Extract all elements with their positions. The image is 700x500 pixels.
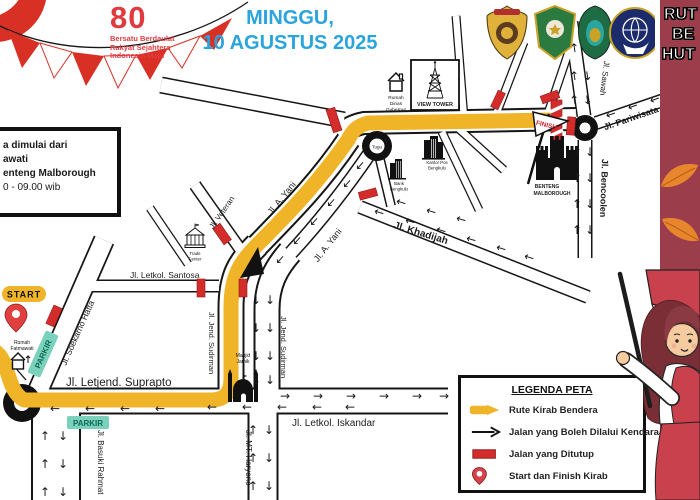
svg-text:↑: ↑ bbox=[40, 457, 50, 471]
banner-line-3: HUT bbox=[662, 46, 695, 64]
start-badge: START bbox=[2, 286, 46, 302]
svg-text:↓: ↓ bbox=[585, 145, 595, 159]
svg-text:→: → bbox=[280, 389, 290, 403]
mascot-skirt bbox=[655, 422, 700, 500]
view-tower-label: VIEW TOWER bbox=[417, 102, 453, 108]
svg-text:↓: ↓ bbox=[585, 223, 595, 237]
kantor-pos-label-2: Bengkulu bbox=[428, 166, 447, 171]
gov-house-label-1: Rumah bbox=[388, 95, 404, 101]
legend-item-label: Jalan yang Ditutup bbox=[509, 449, 594, 460]
bank-label-2: Bengkulu bbox=[390, 187, 409, 192]
svg-text:←: ← bbox=[120, 402, 130, 416]
start-label: START bbox=[7, 290, 41, 300]
svg-text:↓: ↓ bbox=[264, 423, 274, 437]
street-label-sudirman-right: Jl. Jend. Sudirman bbox=[279, 316, 288, 378]
street-label-santosa: Jl. Letkol. Santosa bbox=[130, 270, 200, 280]
svg-text:←: ← bbox=[424, 203, 438, 219]
svg-text:↓: ↓ bbox=[251, 373, 261, 387]
svg-text:↓: ↓ bbox=[581, 68, 593, 83]
allowed-arrow-icon bbox=[470, 425, 502, 439]
anniversary-tagline-3: Indonesia Maju bbox=[110, 52, 175, 61]
trade-center-icon bbox=[185, 224, 205, 248]
info-line-4: 0 - 09.00 wib bbox=[3, 181, 115, 195]
street-label-iskandar: Jl. Letkol. Iskandar bbox=[292, 418, 376, 429]
svg-text:←: ← bbox=[85, 402, 95, 416]
masjid-label-2: Jamik bbox=[236, 359, 250, 365]
legend-item-label: Rute Kirab Bendera bbox=[509, 405, 598, 416]
svg-text:←: ← bbox=[522, 249, 536, 265]
info-line-1: a dimulai dari bbox=[3, 139, 115, 153]
province-shield-icon bbox=[535, 6, 575, 59]
mascot-flag-bearer bbox=[598, 262, 700, 500]
police-badge-icon bbox=[487, 6, 527, 59]
leaf-ornament bbox=[660, 212, 700, 250]
route-arrow-icon bbox=[470, 403, 502, 417]
svg-text:↓: ↓ bbox=[585, 197, 595, 211]
benteng-label-2: MALBOROUGH bbox=[534, 191, 571, 197]
svg-text:↓: ↓ bbox=[585, 171, 595, 185]
svg-text:↑: ↑ bbox=[248, 423, 258, 437]
event-date: MINGGU, 10 AGUSTUS 2025 bbox=[180, 6, 400, 56]
legend-item-label: Start dan Finish Kirab bbox=[509, 471, 608, 482]
gov-house-label-3: Gubernur bbox=[386, 107, 407, 113]
trade-center-label-2: Center bbox=[189, 257, 202, 262]
benteng-label-1: BENTENG bbox=[535, 184, 560, 190]
view-tower-icon: VIEW TOWER bbox=[411, 60, 459, 110]
start-finish-pin-icon bbox=[470, 466, 502, 486]
svg-text:↓: ↓ bbox=[264, 451, 274, 465]
kantor-pos-label-1: Kantor Pos bbox=[426, 160, 447, 165]
street-label-basuki: Jl. Basuki Rahmat bbox=[96, 430, 105, 495]
closed-road-icon bbox=[470, 447, 502, 461]
info-line-2: awati bbox=[3, 153, 115, 167]
leaf-ornament bbox=[660, 158, 700, 196]
info-line-3: enteng Malborough bbox=[3, 167, 115, 181]
svg-text:→: → bbox=[313, 389, 323, 403]
svg-text:↑: ↑ bbox=[572, 223, 582, 237]
anniversary-logo: 80 Bersatu Berdaulat Rakyat Sejahtera In… bbox=[110, 2, 175, 61]
parkir-badge-2: PARKIR bbox=[67, 416, 109, 429]
svg-text:↑: ↑ bbox=[568, 92, 580, 107]
svg-text:↑: ↑ bbox=[572, 145, 582, 159]
svg-text:→: → bbox=[379, 389, 389, 403]
svg-text:→: → bbox=[439, 389, 449, 403]
svg-text:↓: ↓ bbox=[264, 479, 274, 493]
street-label-suprapto: Jl. Letjend. Suprapto bbox=[66, 377, 172, 389]
svg-text:↓: ↓ bbox=[251, 321, 261, 335]
svg-text:↑: ↑ bbox=[40, 429, 50, 443]
svg-text:→: → bbox=[346, 389, 356, 403]
svg-text:↑: ↑ bbox=[248, 451, 258, 465]
svg-text:↓: ↓ bbox=[58, 429, 68, 443]
svg-text:←: ← bbox=[155, 402, 165, 416]
route-info-box: a dimulai dari awati enteng Malborough 0… bbox=[0, 127, 121, 217]
event-day: MINGGU, bbox=[180, 6, 400, 30]
event-date-line: 10 AGUSTUS 2025 bbox=[180, 30, 400, 56]
bank-building-icon bbox=[388, 159, 406, 180]
mascot-hand bbox=[617, 352, 630, 365]
fatmawati-label-2: Fatmawati bbox=[10, 346, 33, 352]
svg-text:↓: ↓ bbox=[265, 373, 275, 387]
svg-text:←: ← bbox=[464, 231, 478, 247]
svg-text:↓: ↓ bbox=[58, 457, 68, 471]
governor-house-icon bbox=[388, 73, 404, 91]
svg-text:↓: ↓ bbox=[265, 349, 275, 363]
tugu-roundabout: Tugu bbox=[362, 131, 392, 161]
agency-logos bbox=[485, 4, 655, 66]
svg-text:↓: ↓ bbox=[265, 321, 275, 335]
svg-text:↑: ↑ bbox=[572, 197, 582, 211]
svg-text:↓: ↓ bbox=[58, 485, 68, 499]
svg-text:↓: ↓ bbox=[581, 92, 593, 107]
svg-text:←: ← bbox=[207, 400, 217, 414]
svg-text:←: ← bbox=[242, 400, 252, 414]
gov-house-label-2: Dinas bbox=[390, 101, 403, 107]
bank-label-1: Bank bbox=[394, 181, 405, 186]
svg-text:←: ← bbox=[494, 240, 508, 256]
svg-text:↓: ↓ bbox=[251, 293, 261, 307]
svg-text:↓: ↓ bbox=[265, 293, 275, 307]
tugu-label: Tugu bbox=[372, 145, 383, 150]
svg-text:←: ← bbox=[50, 402, 60, 416]
svg-text:←: ← bbox=[394, 194, 408, 210]
city-shield-icon bbox=[579, 6, 612, 59]
svg-text:↑: ↑ bbox=[568, 68, 580, 83]
street-label-sudirman-left: Jl. Jend. Sudirman bbox=[207, 312, 216, 374]
route-map-poster: Tugu bbox=[0, 0, 700, 500]
banner-line-1: RUT bbox=[664, 6, 697, 24]
banner-line-2: BE bbox=[672, 26, 694, 44]
street-label-bencoolen: Jl. Bencoolen bbox=[598, 159, 610, 218]
trade-center-label-1: Trade bbox=[189, 251, 201, 256]
fatmawati-house-icon bbox=[11, 353, 30, 369]
svg-text:→: → bbox=[412, 389, 422, 403]
svg-text:↓: ↓ bbox=[251, 349, 261, 363]
start-finish-pin-icon bbox=[5, 304, 27, 332]
svg-text:↑: ↑ bbox=[572, 171, 582, 185]
anniversary-number: 80 bbox=[110, 2, 175, 34]
svg-text:↑: ↑ bbox=[40, 485, 50, 499]
svg-text:PARKIR: PARKIR bbox=[73, 419, 103, 428]
svg-text:↑: ↑ bbox=[248, 479, 258, 493]
svg-text:←: ← bbox=[454, 211, 468, 227]
transport-ministry-icon bbox=[610, 8, 655, 58]
